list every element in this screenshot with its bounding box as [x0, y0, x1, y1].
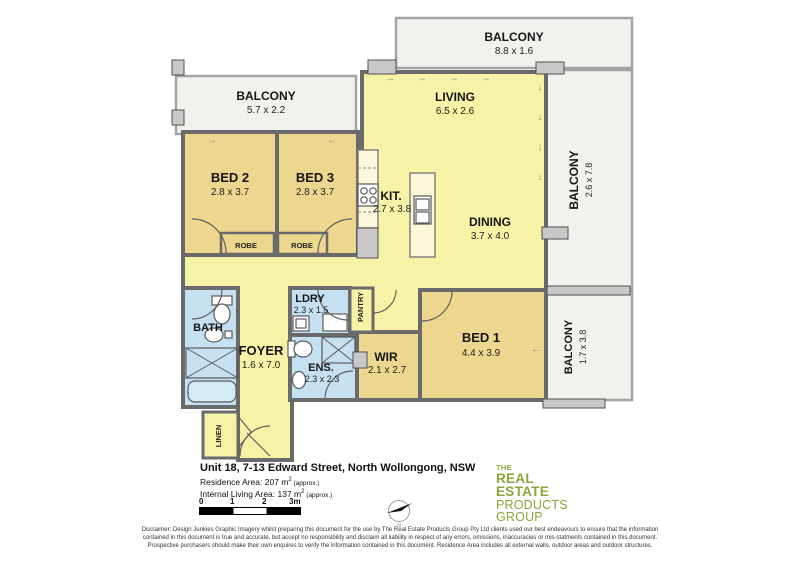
window-arrow-icon: →	[385, 73, 395, 84]
label-ens: ENS.	[308, 362, 334, 374]
label-balcony-top: BALCONY	[484, 30, 543, 44]
toilet-icon	[288, 341, 312, 357]
window-arrow-icon: ↓	[538, 112, 543, 123]
wall-pillar	[353, 352, 367, 368]
dims-balcony-right: 2.6 x 7.8	[584, 163, 594, 198]
dims-bed2: 2.8 x 3.7	[211, 187, 250, 198]
dims-wir: 2.1 x 2.7	[368, 365, 407, 376]
residence-area: Residence Area: 207 m2 (approx.)	[200, 477, 475, 487]
label-kitchen: KIT.	[380, 189, 401, 203]
wall-pillar	[547, 286, 630, 295]
toilet-icon	[212, 296, 232, 324]
window-arrow-icon: ←	[327, 135, 337, 146]
label-balcony-right-lower: BALCONY	[563, 319, 575, 374]
disclaimer-text: Disclaimer: Design Junkies Graphic Image…	[140, 527, 660, 550]
room-bed1	[420, 290, 546, 400]
logo-line: ESTATE	[496, 485, 568, 499]
title-block: Unit 18, 7-13 Edward Street, North Wollo…	[200, 462, 475, 499]
floorplan-page: → → → → ↓ ↓ ↓ ↓ → ← ← BALCONY 8.8 x 1.6 …	[0, 0, 800, 565]
label-bed2: BED 2	[211, 170, 249, 185]
dims-foyer: 1.6 x 7.0	[242, 360, 281, 371]
logo-line: REAL	[496, 472, 568, 486]
label-robe-left: ROBE	[235, 241, 257, 250]
north-arrow-icon: N	[385, 498, 415, 528]
dims-bed1: 4.4 x 3.9	[462, 348, 501, 359]
window-arrow-icon: ↓	[538, 172, 543, 183]
label-linen: LINEN	[214, 425, 223, 448]
scale-bar-segments	[199, 507, 301, 515]
wall-pillar	[542, 227, 568, 239]
dims-ldry: 2.3 x 1.5	[294, 305, 329, 315]
sink-icon	[414, 196, 431, 224]
dims-living: 6.5 x 2.6	[436, 106, 475, 117]
label-bed1: BED 1	[462, 330, 500, 345]
wall-pillar	[172, 60, 184, 75]
dims-balcony-right-lower: 1.7 x 3.8	[578, 330, 588, 365]
dims-kitchen: 2.7 x 3.8	[373, 204, 412, 215]
label-pantry: PANTRY	[356, 292, 365, 322]
dims-balcony-top: 8.8 x 1.6	[495, 46, 534, 57]
window-arrow-icon: →	[207, 135, 217, 146]
wall-pillar	[172, 110, 184, 125]
label-wir: WIR	[374, 350, 398, 364]
window-arrow-icon: ←	[531, 344, 541, 355]
wall-pillar	[536, 62, 564, 74]
scale-ticks: 0 1 2 3m	[199, 497, 301, 506]
wall-pillar	[368, 60, 396, 74]
window-arrow-icon: ↓	[538, 142, 543, 153]
laundry-tub-icon	[293, 316, 309, 331]
room-balcony-right-lower	[546, 290, 632, 400]
window-arrow-icon: →	[449, 73, 459, 84]
label-robe-right: ROBE	[291, 241, 313, 250]
window-arrow-icon: →	[481, 73, 491, 84]
dims-dining: 3.7 x 4.0	[471, 231, 510, 242]
scale-bar: 0 1 2 3m	[199, 497, 301, 515]
brand-logo: THE REAL ESTATE PRODUCTS GROUP	[496, 464, 568, 524]
stove-icon	[358, 184, 378, 206]
label-ldry: LDRY	[295, 293, 325, 305]
label-balcony-right: BALCONY	[567, 150, 581, 209]
window-arrow-icon: ↓	[538, 82, 543, 93]
label-living: LIVING	[435, 90, 475, 104]
dims-ens: 2.3 x 2.3	[305, 374, 340, 384]
label-dining: DINING	[469, 215, 511, 229]
property-address: Unit 18, 7-13 Edward Street, North Wollo…	[200, 462, 475, 474]
logo-line: GROUP	[496, 511, 568, 524]
label-bath: BATH	[193, 322, 223, 334]
wall-pillar	[543, 399, 605, 408]
window-arrow-icon: →	[417, 73, 427, 84]
basin-icon	[293, 372, 306, 389]
label-balcony-left: BALCONY	[236, 89, 295, 103]
bathtub-icon	[188, 381, 236, 402]
dims-balcony-left: 5.7 x 2.2	[247, 105, 286, 116]
fridge-space	[357, 228, 378, 258]
label-bed3: BED 3	[296, 170, 334, 185]
dims-bed3: 2.8 x 3.7	[296, 187, 335, 198]
label-foyer: FOYER	[239, 343, 284, 358]
